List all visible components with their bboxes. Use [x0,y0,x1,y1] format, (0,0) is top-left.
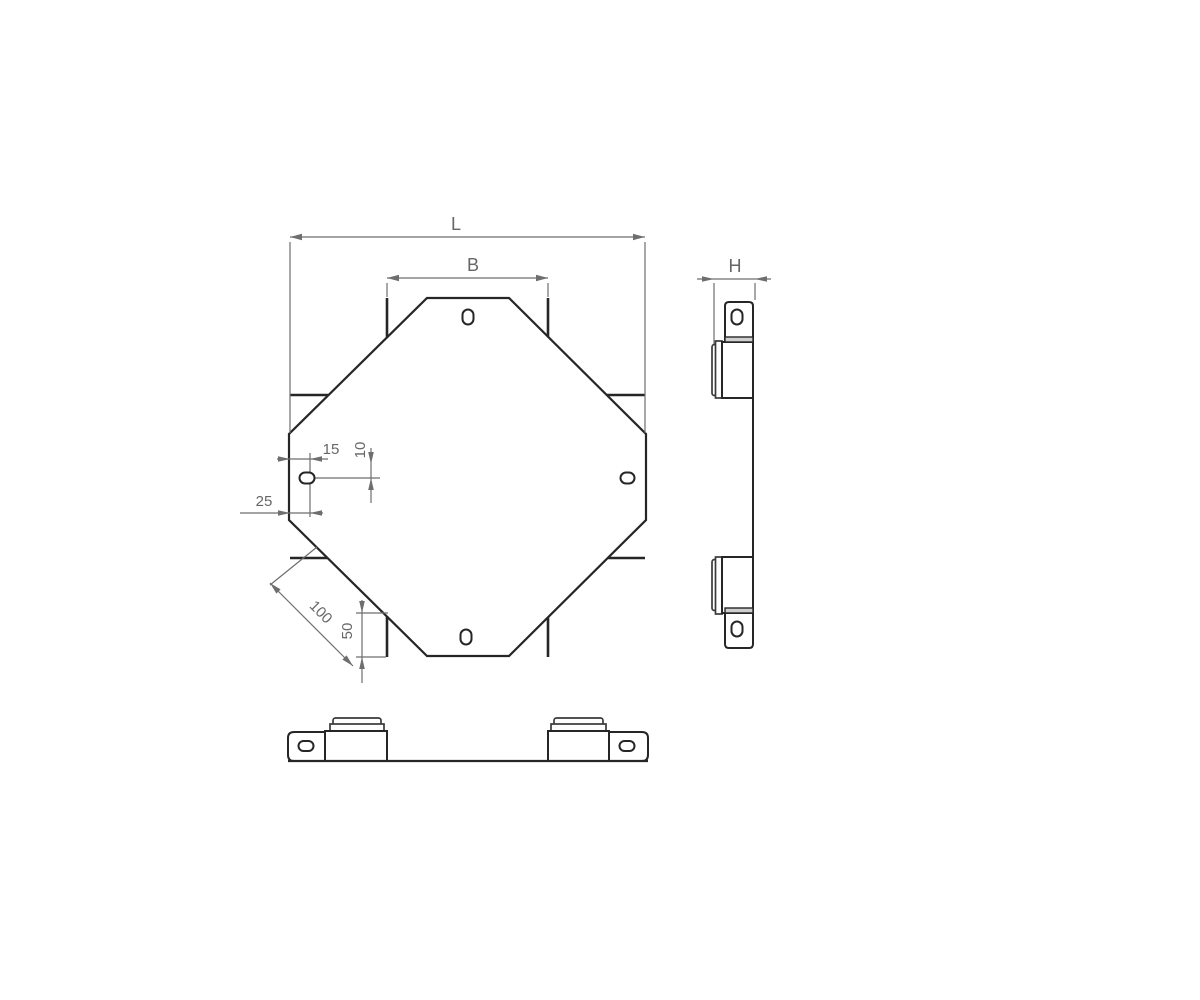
upper-bracket-fold [725,337,753,342]
slot-hole-left [300,473,315,484]
technical-drawing-page: L B 15 10 25 [0,0,1200,1000]
lower-coupler-plate [722,557,753,613]
arrowhead [290,234,302,240]
technical-drawing: L B 15 10 25 [0,0,1200,1000]
slot-hole-right [621,473,635,484]
lower-bracket-fold [725,608,753,613]
dim-label-15: 15 [323,441,340,458]
arrowhead [387,275,399,281]
dim-label-L: L [451,214,461,234]
dimension-B: B [387,255,548,297]
side-view [712,302,753,648]
dim-label-B: B [467,255,479,275]
right-coupler-block [548,731,609,761]
arrowhead [633,234,645,240]
arrowhead [702,276,714,282]
left-bracket-slot-hole [299,741,314,751]
octagon-cover-outline [289,298,646,656]
upper-coupler-plate [722,342,753,398]
left-coupler-block [325,731,387,761]
upper-bracket-slot-hole [732,310,743,325]
bottom-view [288,718,648,761]
dimension-50: 50 [339,600,388,683]
arrowhead [359,601,365,613]
lower-bracket-slot-hole [732,622,743,637]
right-bracket-slot-hole [620,741,635,751]
dim-label-H: H [729,256,742,276]
slot-hole-bottom [461,630,472,645]
dim-label-10: 10 [352,442,369,459]
arrowhead [755,276,767,282]
arrowhead [359,657,365,669]
dim-label-50: 50 [339,623,356,640]
dim-label-25: 25 [256,493,273,510]
arrowhead [536,275,548,281]
slot-hole-top [463,310,474,325]
